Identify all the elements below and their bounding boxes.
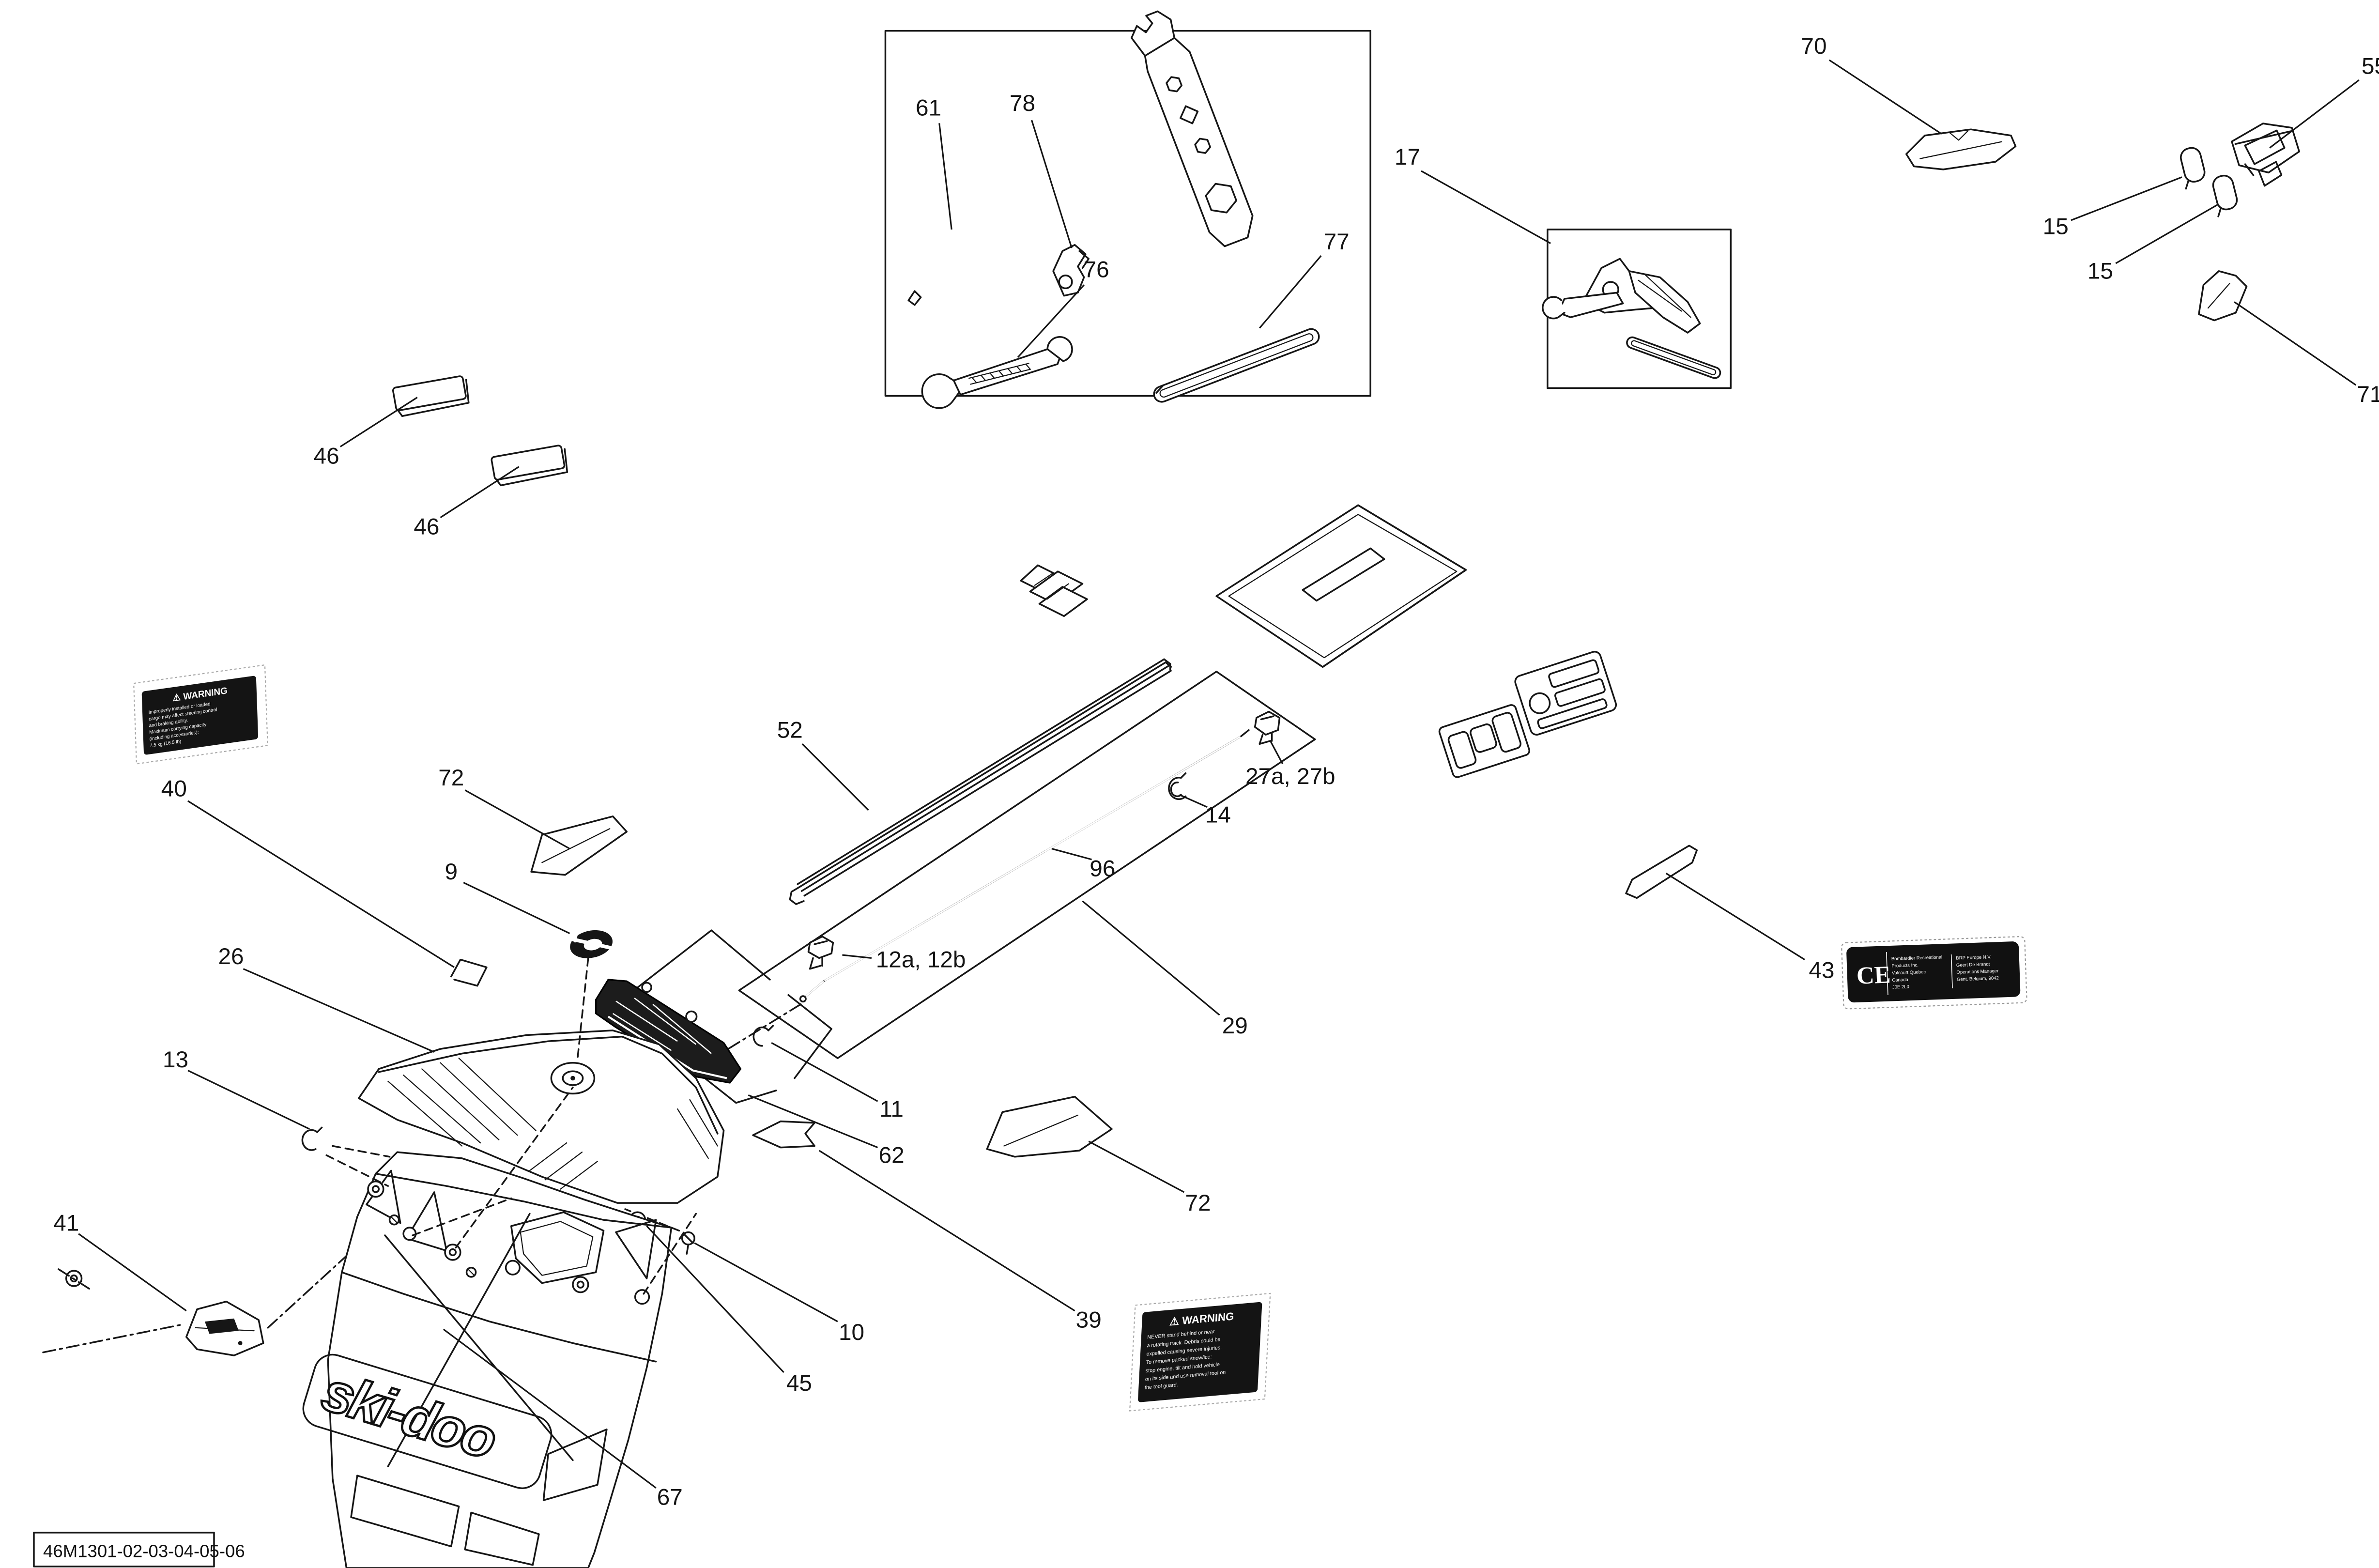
part-29-panel-outline	[739, 672, 1315, 1058]
part-43-strip	[1626, 845, 1697, 898]
decal-plate-large	[1514, 650, 1618, 737]
part-label-77: 77	[1324, 229, 1350, 255]
part-46-pad-2	[491, 445, 569, 486]
leader-line-39	[819, 1151, 1075, 1311]
manual-pouch-icon	[1216, 505, 1466, 667]
part-label-46: 46	[414, 514, 439, 540]
part-label-41: 41	[53, 1210, 79, 1236]
part-55-latch	[2230, 118, 2304, 190]
part-13-clip-icon	[302, 1127, 389, 1156]
part-label-72: 72	[1185, 1190, 1211, 1216]
leader-line-45	[647, 1226, 784, 1372]
part-96-latch-rod	[800, 730, 1249, 1002]
part-71-deflector	[2199, 271, 2247, 321]
part-label-43: 43	[1809, 958, 1834, 984]
part-label-67: 67	[657, 1484, 683, 1510]
folded-document-icon	[1021, 565, 1087, 616]
drawing-number-box: 46M1301-02-03-04-05-06	[34, 1533, 245, 1567]
part-label-39: 39	[1076, 1307, 1102, 1333]
parts-diagram-page: ski-doo CE Bombardier RecreationalProduc…	[0, 0, 2379, 1568]
exploded-parts-diagram: ski-doo CE Bombardier RecreationalProduc…	[0, 0, 2379, 1568]
leader-line-29	[1082, 901, 1219, 1015]
drawing-number-text: 46M1301-02-03-04-05-06	[43, 1541, 245, 1561]
warning-label-left: ⚠ WARNING Improperly installed or loaded…	[134, 665, 268, 764]
part-label-29: 29	[1222, 1013, 1248, 1039]
tool-kit-box	[885, 6, 1370, 412]
part-12ab-clip-icon	[808, 937, 833, 969]
part-label-13: 13	[163, 1047, 188, 1073]
part-41-wedge	[43, 1229, 376, 1355]
part-label-9: 9	[445, 859, 458, 885]
tool-kit-box-17	[1543, 230, 1731, 388]
part-39-arrow-trim	[753, 1122, 814, 1148]
part-15-seal-ring-2	[2209, 174, 2240, 216]
part-label-17: 17	[1395, 144, 1420, 170]
part-72-blade-left	[531, 816, 627, 875]
part-label-15: 15	[2043, 214, 2069, 239]
ce-logo-text: CE	[1856, 961, 1891, 989]
part-label-27a, 27b: 27a, 27b	[1245, 764, 1335, 789]
part-label-14: 14	[1205, 802, 1231, 828]
part-label-55: 55	[2362, 54, 2379, 79]
part-15-seal-ring-1	[2177, 146, 2208, 188]
leader-line-26	[243, 969, 434, 1052]
part-label-61: 61	[916, 95, 941, 121]
leader-line-72	[465, 790, 569, 849]
leader-line-71	[2234, 302, 2356, 385]
leader-line-10	[694, 1243, 838, 1322]
part-label-40: 40	[161, 776, 187, 801]
leader-line-72	[1089, 1141, 1184, 1192]
part-label-45: 45	[786, 1370, 812, 1396]
part-label-12a, 12b: 12a, 12b	[876, 947, 966, 972]
leader-line-46	[440, 467, 519, 518]
part-label-46: 46	[314, 443, 339, 469]
leader-line-17	[1421, 171, 1550, 243]
part-label-76: 76	[1084, 257, 1109, 282]
leader-line-14	[1180, 795, 1207, 807]
part-label-11: 11	[879, 1096, 904, 1122]
leader-line-55	[2270, 80, 2359, 148]
leader-line-15	[2116, 205, 2217, 263]
leader-line-96	[1052, 849, 1092, 860]
part-label-70: 70	[1801, 33, 1826, 59]
leader-line-41	[78, 1234, 186, 1311]
part-27ab-latch-icon	[1255, 712, 1280, 744]
part-label-26: 26	[218, 944, 244, 969]
part-70-deflector	[1906, 129, 2016, 169]
warning-label-bottom: ⚠ WARNING NEVER stand behind or neara ro…	[1130, 1293, 1270, 1411]
part-label-71: 71	[2357, 382, 2379, 407]
part-label-15: 15	[2087, 259, 2113, 284]
part-46-pad-1	[393, 375, 471, 417]
leader-line-9	[463, 883, 569, 934]
part-label-96: 96	[1090, 856, 1115, 882]
decal-plate-small	[1438, 704, 1531, 778]
leader-line-11	[771, 1043, 877, 1101]
part-11-clip-icon	[753, 1026, 773, 1045]
part-label-10: 10	[839, 1320, 864, 1345]
leader-line-52	[802, 744, 869, 810]
leader-line-40	[188, 801, 454, 968]
leader-line-46	[340, 398, 417, 447]
leader-line-43	[1666, 873, 1805, 959]
leader-line-15	[2071, 177, 2182, 220]
ce-label: CE Bombardier RecreationalProducts Inc.V…	[1842, 937, 2027, 1009]
leader-line-27a, 27b	[1270, 741, 1282, 764]
part-72-blade-right	[987, 1097, 1112, 1157]
part-40-decal	[451, 960, 487, 986]
left-washer-icon	[59, 1269, 92, 1291]
leader-line-13	[188, 1071, 309, 1129]
part-label-62: 62	[879, 1142, 905, 1168]
part-9-grommet	[566, 924, 615, 962]
part-label-72: 72	[438, 765, 464, 791]
part-label-52: 52	[777, 717, 803, 743]
leader-line-70	[1829, 60, 1942, 134]
part-label-78: 78	[1010, 91, 1035, 116]
